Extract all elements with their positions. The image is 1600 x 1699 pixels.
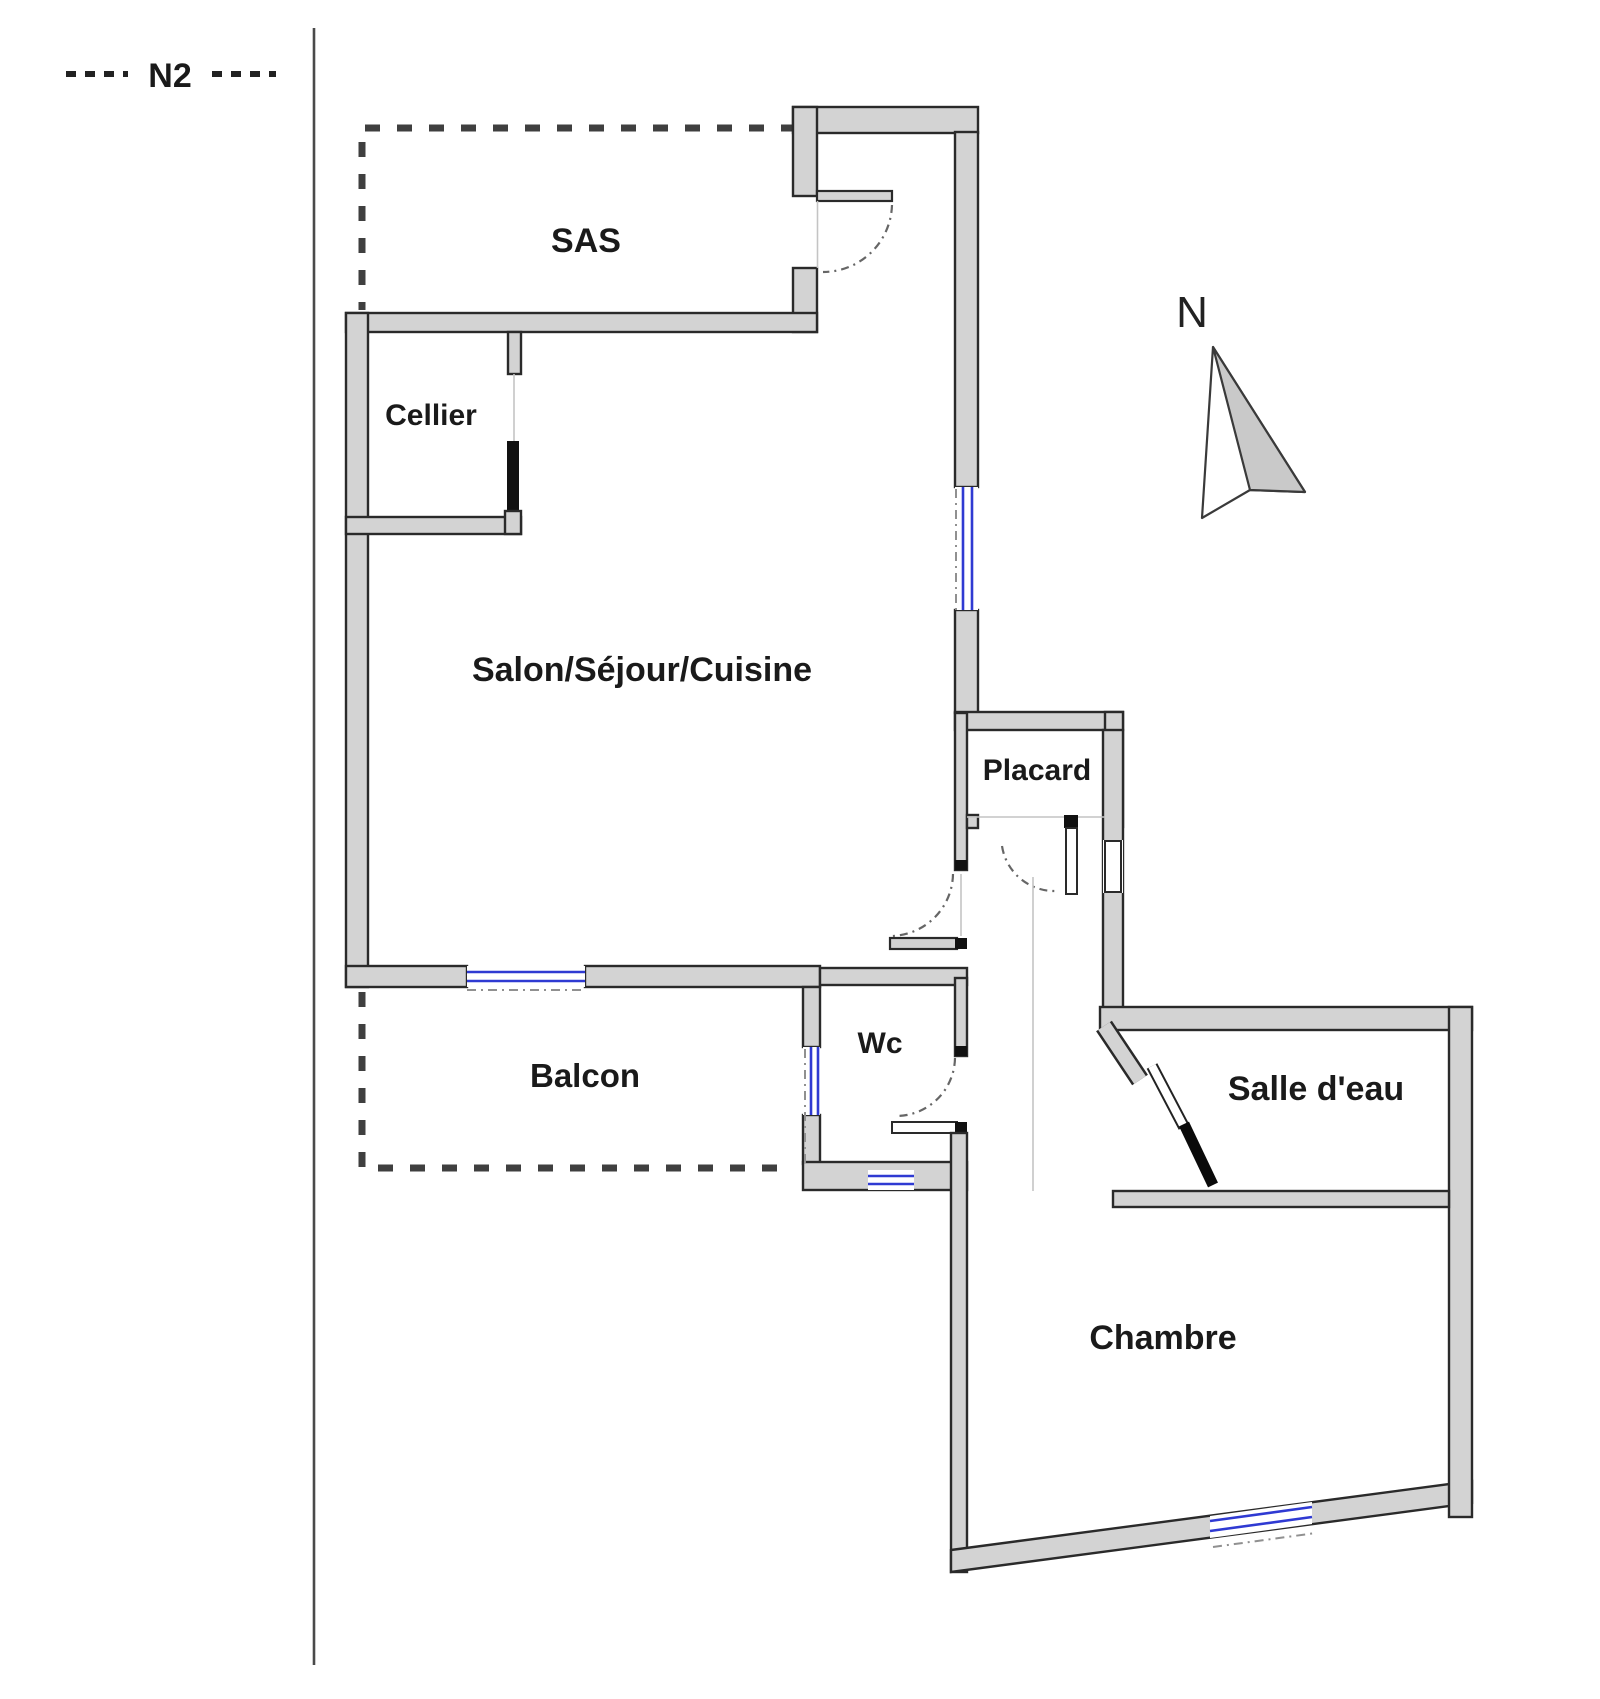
room-label-salledeau: Salle d'eau bbox=[1228, 1070, 1404, 1108]
plan-id-label: N2 bbox=[148, 57, 191, 95]
hall-door-stub bbox=[890, 938, 957, 949]
window-wc-bottom bbox=[868, 1170, 914, 1190]
hall-right-door-leaf bbox=[1105, 841, 1121, 892]
wall-entrance-door-stub bbox=[817, 191, 892, 201]
room-label-placard: Placard bbox=[983, 754, 1091, 787]
floor-plan-page: N2 bbox=[0, 0, 1600, 1699]
room-label-cellier: Cellier bbox=[385, 399, 477, 432]
floor-plan-svg: N2 bbox=[0, 0, 1600, 1699]
room-label-balcon: Balcon bbox=[530, 1057, 640, 1094]
wall-placard-top bbox=[955, 712, 1123, 730]
wall-left-outer bbox=[346, 313, 368, 987]
wall-right-mid bbox=[955, 610, 978, 713]
room-label-salon: Salon/Séjour/Cuisine bbox=[472, 651, 812, 689]
room-label-chambre: Chambre bbox=[1089, 1319, 1236, 1357]
wall-salon-top bbox=[346, 313, 817, 332]
entrance-door-swing-arc bbox=[823, 205, 892, 272]
wall-wc-left-upper bbox=[803, 987, 820, 1047]
room-label-wc: Wc bbox=[858, 1027, 903, 1060]
placard-door-hinge bbox=[1064, 815, 1078, 828]
window-chambre-bottom bbox=[1210, 1502, 1316, 1547]
wall-right-upper bbox=[955, 132, 978, 487]
wc-door-stub bbox=[892, 1122, 957, 1133]
window-gap bbox=[868, 1170, 914, 1190]
wall-cellier-bottom bbox=[346, 517, 521, 534]
compass-north-label: N bbox=[1176, 288, 1208, 337]
wc-door-swing-arc bbox=[896, 1058, 955, 1116]
wall-diagonal bbox=[1104, 1026, 1140, 1080]
wall-salledeau-top bbox=[1100, 1007, 1472, 1030]
window-gap bbox=[955, 487, 978, 610]
wall-hall-left-cap bbox=[955, 860, 967, 870]
placard-door-swing-arc bbox=[1002, 846, 1056, 891]
wall-salon-bottom-right bbox=[585, 966, 820, 987]
wall-entrance-left-upper bbox=[793, 107, 817, 196]
hall-door-swing-arc bbox=[890, 874, 953, 936]
wall-cellier-bottom-step bbox=[505, 511, 521, 534]
wall-top-entrance bbox=[793, 107, 978, 133]
wall-salon-bottom-left bbox=[346, 966, 467, 987]
dashed-boundaries bbox=[362, 128, 796, 1168]
wall-wc-right bbox=[955, 978, 967, 1056]
salledeau-door-leaf-black bbox=[1184, 1124, 1213, 1185]
window-salon-right bbox=[955, 487, 978, 610]
cellier-door-leaf bbox=[507, 441, 519, 511]
wc-door-stub-cap bbox=[955, 1122, 967, 1133]
wall-wc-right-cap bbox=[955, 1046, 967, 1056]
wall-wc-top bbox=[820, 968, 967, 985]
wall-salledeau-bottom bbox=[1113, 1191, 1449, 1207]
walls bbox=[346, 107, 1472, 1572]
window-salon-bottom bbox=[467, 966, 585, 990]
room-label-sas: SAS bbox=[551, 222, 621, 260]
placard-door-leaf bbox=[1066, 828, 1077, 894]
wall-right-outer bbox=[1449, 1007, 1472, 1517]
wall-hall-left bbox=[955, 713, 967, 870]
wall-chambre-left bbox=[951, 1133, 967, 1572]
window-gap bbox=[467, 966, 585, 987]
plan-annotation: N2 bbox=[66, 57, 276, 95]
compass: N bbox=[1176, 288, 1305, 518]
salledeau-door-leaf-white bbox=[1152, 1066, 1184, 1127]
wall-cellier-right bbox=[508, 332, 521, 374]
hall-door-stub-cap bbox=[955, 938, 967, 949]
sas-dashed-boundary bbox=[362, 128, 796, 310]
